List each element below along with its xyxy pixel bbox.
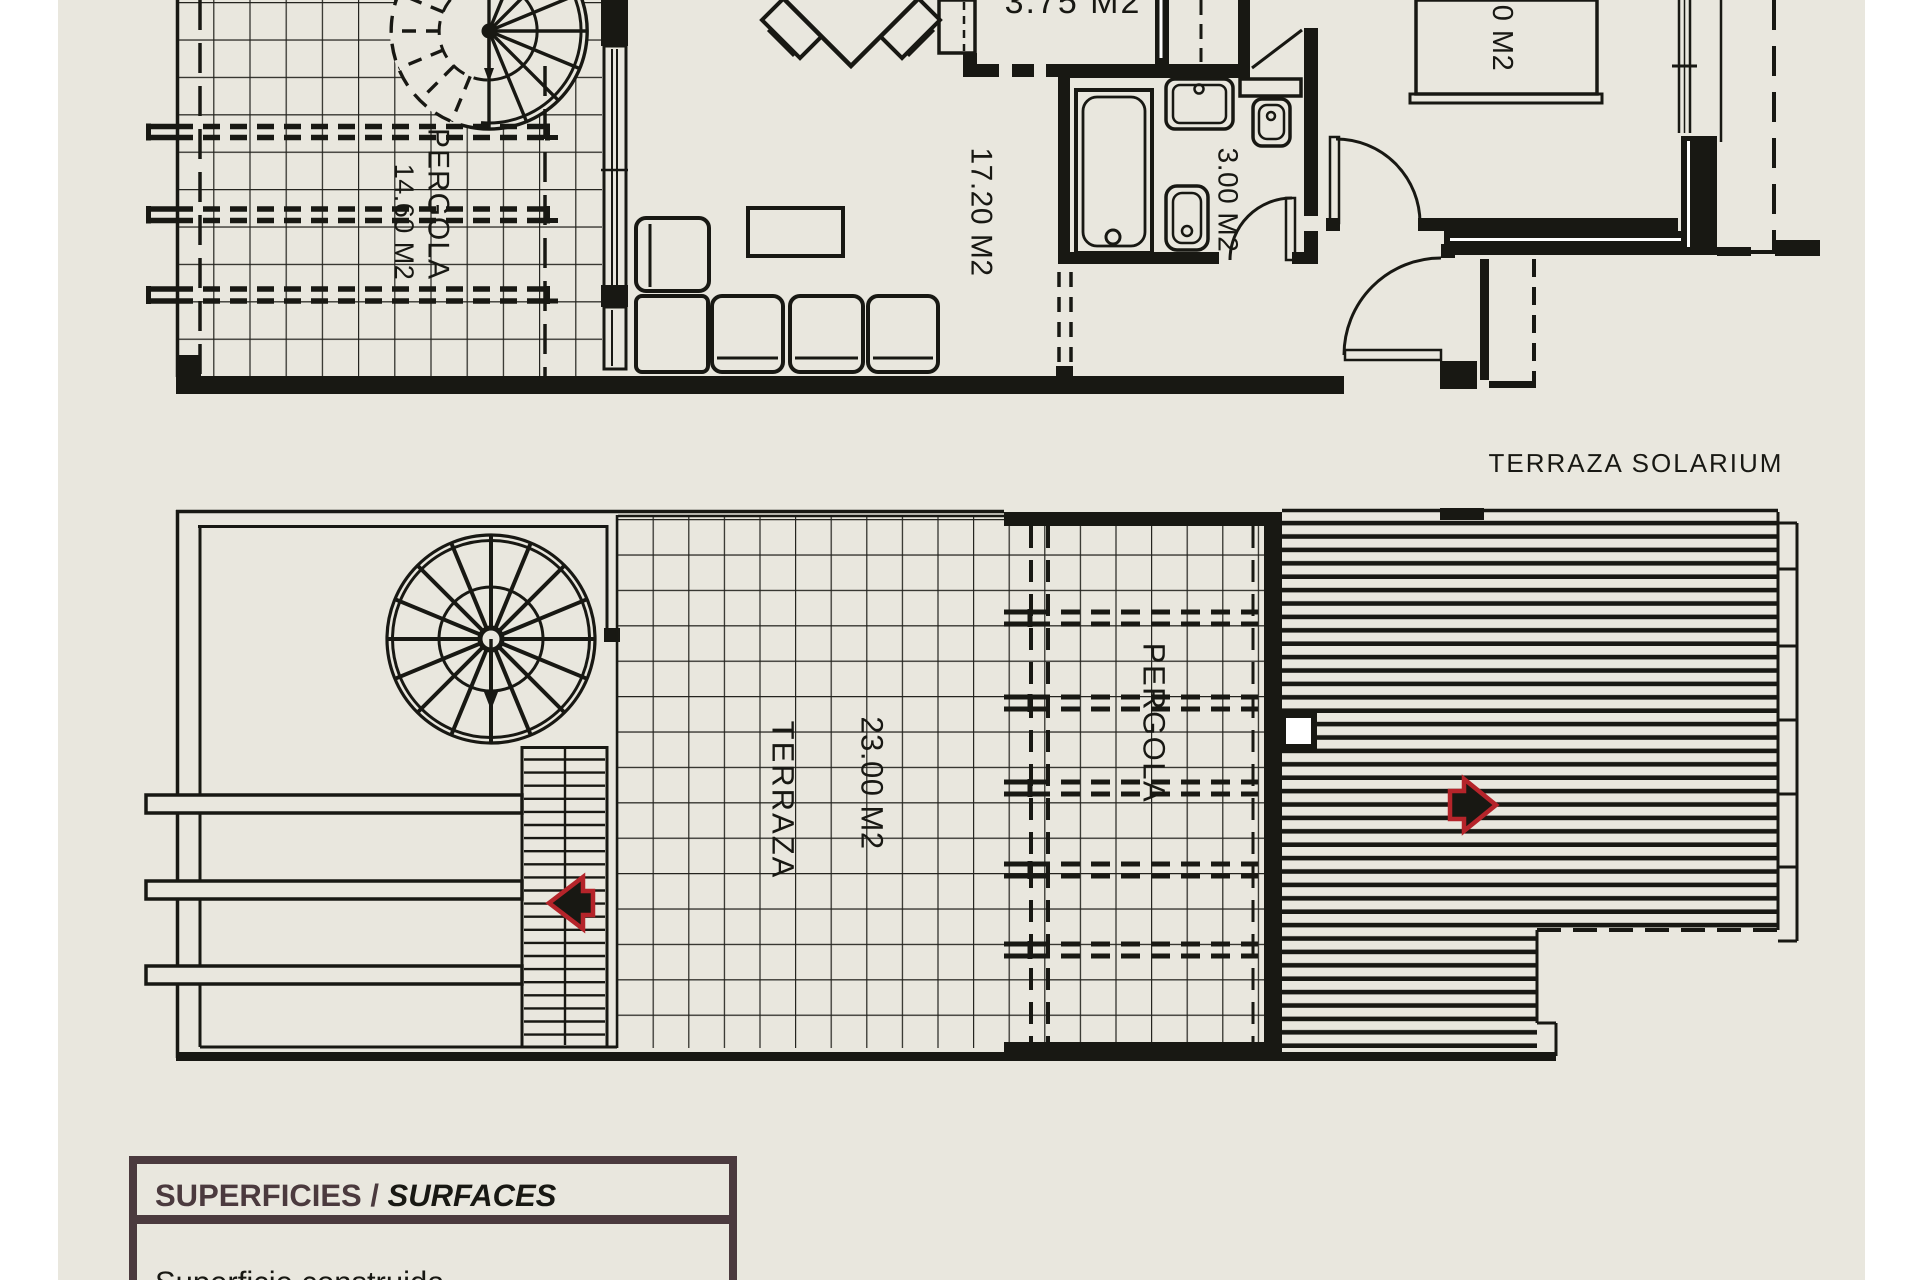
svg-text:3.00 M2: 3.00 M2	[1213, 148, 1244, 253]
svg-text:TERRAZA: TERRAZA	[766, 721, 801, 880]
svg-text:PERGOLA: PERGOLA	[1137, 643, 1172, 803]
svg-text:17.20 M2: 17.20 M2	[965, 147, 998, 276]
svg-text:SUPERFICIES / SURFACES: SUPERFICIES / SURFACES	[155, 1178, 557, 1213]
svg-text:3.75 M2: 3.75 M2	[1005, 0, 1142, 21]
svg-text:0 M2: 0 M2	[1486, 5, 1518, 71]
svg-text:TERRAZA SOLARIUM: TERRAZA SOLARIUM	[1489, 448, 1784, 478]
svg-text:14.60 M2: 14.60 M2	[389, 164, 419, 281]
svg-text:PERGOLA: PERGOLA	[422, 128, 455, 280]
svg-text:Superficie construida: Superficie construida	[155, 1265, 445, 1280]
svg-text:23.00 M2: 23.00 M2	[855, 716, 890, 849]
